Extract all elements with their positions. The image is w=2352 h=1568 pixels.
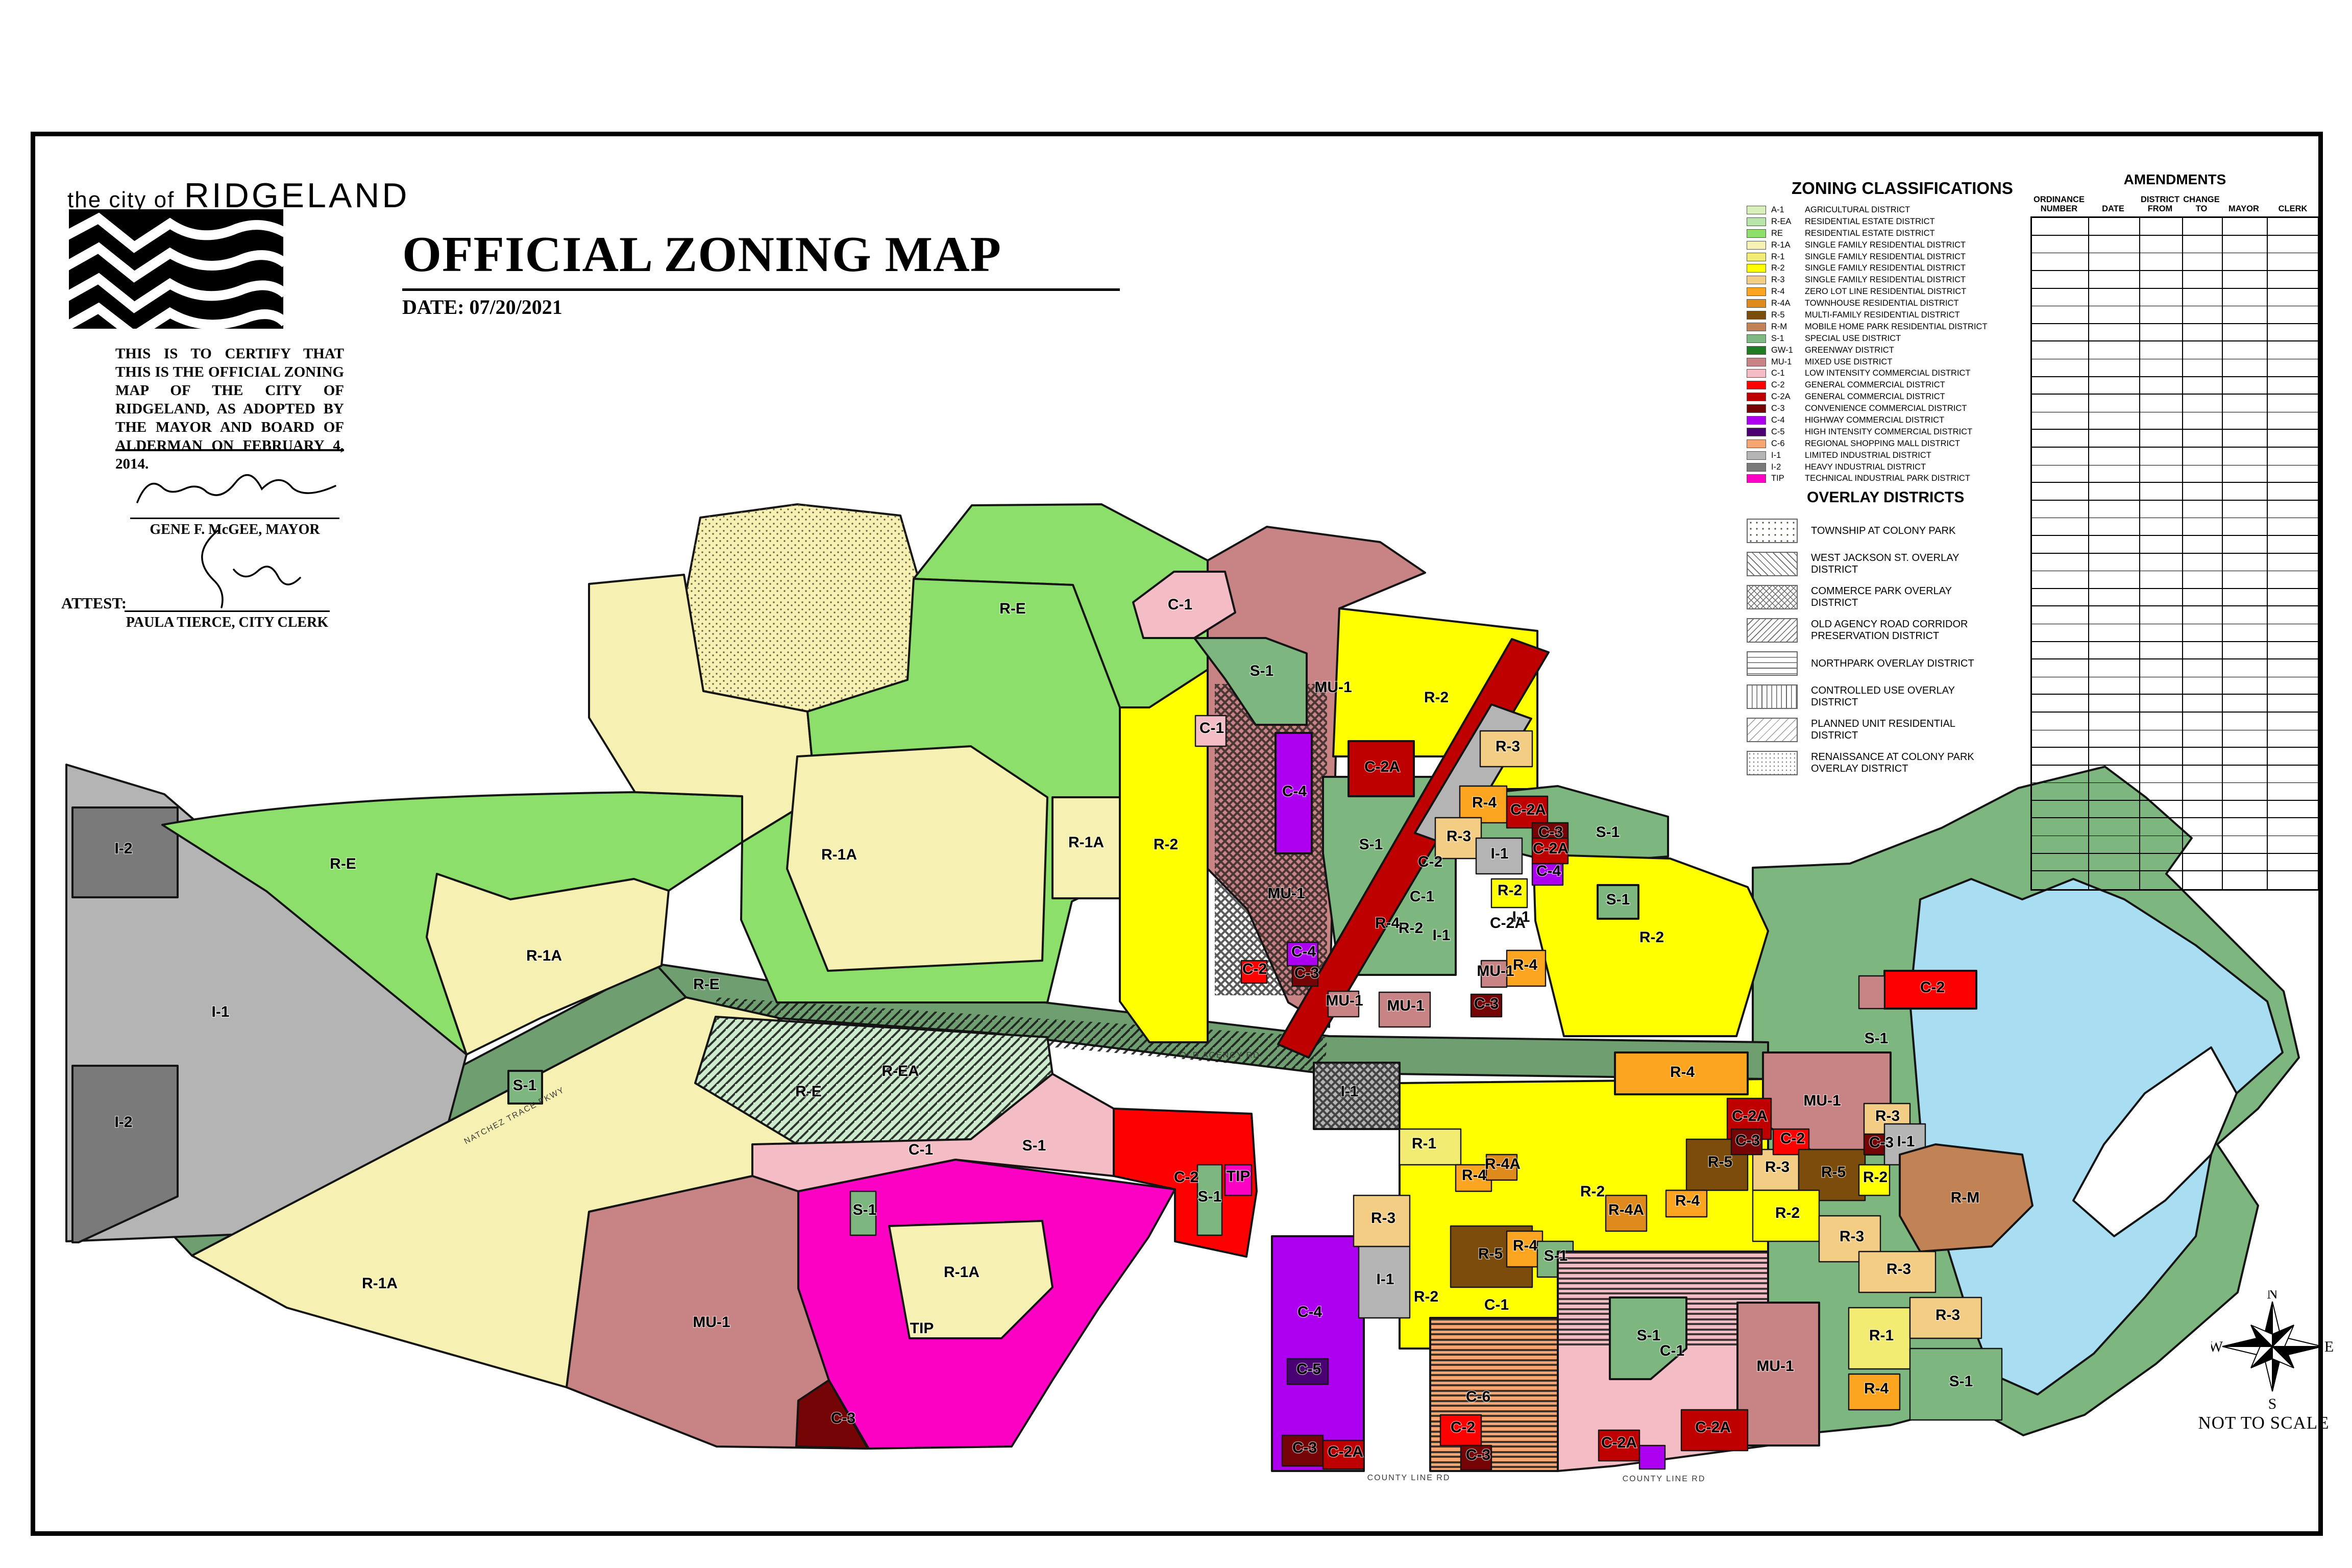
legend-item: C-2A GENERAL COMMERCIAL DISTRICT	[1747, 391, 2040, 403]
legend-swatch	[1747, 206, 1766, 214]
legend-item: C-2 GENERAL COMMERCIAL DISTRICT	[1747, 379, 2040, 391]
amendments-cell	[2223, 324, 2268, 341]
amendments-row	[2032, 766, 2318, 783]
amendments-row	[2032, 801, 2318, 819]
amendments-cell	[2223, 465, 2268, 482]
legend-code: C-6	[1771, 439, 1805, 449]
legend-swatch	[1747, 276, 1766, 284]
amendments-cell	[2223, 606, 2268, 624]
amendments-cell	[2183, 218, 2223, 235]
overlay-item: WEST JACKSON ST. OVERLAY DISTRICT	[1747, 552, 2040, 576]
overlay-title: OVERLAY DISTRICTS	[1807, 489, 2040, 506]
legend-swatch	[1747, 358, 1766, 366]
legend-code: I-1	[1771, 451, 1805, 460]
legend-item: S-1 SPECIAL USE DISTRICT	[1747, 333, 2040, 345]
amendments-cell	[2140, 536, 2183, 553]
amendments-cell	[2223, 659, 2268, 677]
legend-swatch	[1747, 416, 1766, 425]
amendments-cell	[2268, 236, 2318, 253]
amendments-cell	[2223, 748, 2268, 765]
amendments-cell	[2032, 871, 2089, 889]
amendments-cell	[2140, 836, 2183, 853]
amendments-cell	[2140, 818, 2183, 836]
amendments-row	[2032, 324, 2318, 342]
amendments-row	[2032, 783, 2318, 801]
legend-item: GW-1 GREENWAY DISTRICT	[1747, 345, 2040, 356]
amendments-cell	[2032, 713, 2089, 730]
legend-code: C-4	[1771, 415, 1805, 425]
amendments-row	[2032, 624, 2318, 642]
amendments-cell	[2223, 536, 2268, 553]
amendments-cell	[2089, 377, 2140, 394]
amendments-cell	[2183, 518, 2223, 535]
amendments-cell	[2183, 677, 2223, 694]
amendments-cell	[2032, 395, 2089, 412]
amendments-cell	[2140, 518, 2183, 535]
overlay-item: COMMERCE PARK OVERLAY DISTRICT	[1747, 585, 2040, 609]
amendments-cell	[2089, 801, 2140, 818]
amendments-grid	[2030, 216, 2319, 891]
legend-swatch	[1747, 439, 1766, 448]
amendments-cell	[2223, 518, 2268, 535]
amendments-cell	[2268, 359, 2318, 376]
legend-swatch	[1747, 229, 1766, 238]
amendments-cell	[2140, 377, 2183, 394]
amendments-cell	[2140, 642, 2183, 659]
clerk-signature	[168, 527, 311, 619]
amendments-cell	[2183, 536, 2223, 553]
amendments-cell	[2268, 430, 2318, 447]
legend-label: AGRICULTURAL DISTRICT	[1805, 205, 1910, 215]
legend-item: R-M MOBILE HOME PARK RESIDENTIAL DISTRIC…	[1747, 321, 2040, 333]
amendments-cell	[2032, 730, 2089, 747]
amendments-cell	[2223, 818, 2268, 836]
amendments-cell	[2223, 854, 2268, 871]
amendments-cell	[2268, 324, 2318, 341]
legend-item: I-2 HEAVY INDUSTRIAL DISTRICT	[1747, 461, 2040, 473]
amendments-row	[2032, 554, 2318, 572]
mayor-signature	[130, 465, 345, 519]
legend-code: MU-1	[1771, 357, 1805, 367]
amendments-cell	[2032, 748, 2089, 765]
logo-tagline: the city of	[67, 187, 175, 212]
amendments-cell	[2183, 836, 2223, 853]
legend-code: R-M	[1771, 322, 1805, 332]
legend-label: GENERAL COMMERCIAL DISTRICT	[1805, 380, 1945, 390]
amendments-cell	[2140, 854, 2183, 871]
legend-swatch	[1747, 346, 1766, 355]
compass-n: N	[2267, 1290, 2278, 1302]
amendments-cell	[2223, 483, 2268, 500]
amendments-cell	[2089, 501, 2140, 518]
amendments-cell	[2089, 659, 2140, 677]
amendments-cell	[2089, 606, 2140, 624]
amendments-cell	[2223, 642, 2268, 659]
amendments-cell	[2140, 730, 2183, 747]
amendments-cell	[2140, 306, 2183, 323]
amendments-row	[2032, 536, 2318, 554]
legend-item: R-2 SINGLE FAMILY RESIDENTIAL DISTRICT	[1747, 262, 2040, 274]
amendments-cell	[2223, 412, 2268, 429]
legend-item: R-4A TOWNHOUSE RESIDENTIAL DISTRICT	[1747, 298, 2040, 309]
amendments-cell	[2140, 695, 2183, 712]
amendments-cell	[2140, 412, 2183, 429]
legend-label: CONVENIENCE COMMERCIAL DISTRICT	[1805, 404, 1967, 413]
legend-swatch	[1747, 264, 1766, 273]
amendments-cell	[2032, 836, 2089, 853]
amendments-row	[2032, 483, 2318, 501]
amendments-column-header: CHANGE TO	[2182, 195, 2221, 216]
amendments-row	[2032, 412, 2318, 430]
amendments-cell	[2183, 289, 2223, 306]
amendments-cell	[2223, 289, 2268, 306]
amendments-row	[2032, 430, 2318, 448]
amendments-cell	[2183, 395, 2223, 412]
amendments-cell	[2223, 677, 2268, 694]
amendments-cell	[2223, 554, 2268, 571]
amendments-row	[2032, 854, 2318, 872]
amendments-cell	[2183, 642, 2223, 659]
amendments-cell	[2268, 571, 2318, 588]
legend-code: I-2	[1771, 462, 1805, 472]
legend-item: R-3 SINGLE FAMILY RESIDENTIAL DISTRICT	[1747, 274, 2040, 286]
zoning-map-sheet: { "header": { "logo_tagline": "the city …	[0, 0, 2352, 1568]
amendments-cell	[2183, 730, 2223, 747]
amendments-cell	[2268, 677, 2318, 694]
amendments-cell	[2140, 677, 2183, 694]
amendments-cell	[2183, 324, 2223, 341]
legend-swatch	[1747, 393, 1766, 401]
amendments-column-header: DATE	[2088, 204, 2139, 216]
amendments-cell	[2223, 836, 2268, 853]
legend-label: MOBILE HOME PARK RESIDENTIAL DISTRICT	[1805, 322, 1988, 332]
amendments-cell	[2032, 253, 2089, 270]
legend-label: MULTI-FAMILY RESIDENTIAL DISTRICT	[1805, 310, 1960, 320]
amendments-cell	[2268, 836, 2318, 853]
amendments-cell	[2032, 589, 2089, 606]
overlay-label: RENAISSANCE AT COLONY PARK OVERLAY DISTR…	[1811, 751, 1984, 775]
clerk-name: PAULA TIERCE, CITY CLERK	[125, 615, 330, 631]
legend-swatch	[1747, 217, 1766, 226]
amendments-cell	[2223, 871, 2268, 889]
city-flag-logo	[69, 209, 283, 329]
mayor-signature-line	[130, 518, 339, 519]
amendments-cell	[2268, 412, 2318, 429]
amendments-cell	[2223, 395, 2268, 412]
amendments-cell	[2223, 271, 2268, 288]
legend-label: GENERAL COMMERCIAL DISTRICT	[1805, 392, 1945, 402]
amendments-cell	[2032, 536, 2089, 553]
amendments-cell	[2183, 748, 2223, 765]
legend-label: SPECIAL USE DISTRICT	[1805, 334, 1901, 344]
legend-item: R-5 MULTI-FAMILY RESIDENTIAL DISTRICT	[1747, 309, 2040, 321]
legend-code: RE	[1771, 229, 1805, 238]
amendments-cell	[2032, 571, 2089, 588]
amendments-row	[2032, 606, 2318, 624]
overlay-item: PLANNED UNIT RESIDENTIAL DISTRICT	[1747, 718, 2040, 742]
amendments-cell	[2089, 395, 2140, 412]
amendments-cell	[2140, 589, 2183, 606]
amendments-cell	[2032, 624, 2089, 641]
legend-code: R-5	[1771, 310, 1805, 320]
amendments-cell	[2089, 236, 2140, 253]
amendments-cell	[2089, 713, 2140, 730]
amendments-cell	[2140, 624, 2183, 641]
legend-item: MU-1 MIXED USE DISTRICT	[1747, 356, 2040, 368]
amendments-cell	[2268, 854, 2318, 871]
overlay-item: TOWNSHIP AT COLONY PARK	[1747, 519, 2040, 543]
amendments-row	[2032, 871, 2318, 889]
compass-e: E	[2324, 1338, 2334, 1355]
amendments-cell	[2140, 218, 2183, 235]
amendments-cell	[2183, 253, 2223, 270]
legend-label: LIMITED INDUSTRIAL DISTRICT	[1805, 451, 1931, 460]
amendments-cell	[2183, 713, 2223, 730]
amendments-row	[2032, 395, 2318, 412]
amendments-cell	[2089, 271, 2140, 288]
legend-swatch	[1747, 369, 1766, 378]
overlay-label: NORTHPARK OVERLAY DISTRICT	[1811, 658, 1984, 670]
amendments-cell	[2268, 536, 2318, 553]
overlay-label: PLANNED UNIT RESIDENTIAL DISTRICT	[1811, 718, 1984, 742]
amendments-column-header: MAYOR	[2221, 204, 2266, 216]
amendments-column-header: ORDINANCE NUMBER	[2030, 195, 2088, 216]
amendments-row	[2032, 589, 2318, 607]
amendments-cell	[2032, 501, 2089, 518]
amendments-cell	[2268, 253, 2318, 270]
legend-swatch	[1747, 241, 1766, 250]
amendments-cell	[2089, 341, 2140, 359]
amendments-cell	[2268, 395, 2318, 412]
amendments-cell	[2089, 730, 2140, 747]
amendments-cell	[2032, 606, 2089, 624]
amendments-cell	[2089, 465, 2140, 482]
amendments-cell	[2223, 766, 2268, 783]
amendments-cell	[2268, 306, 2318, 323]
amendments-cell	[2268, 766, 2318, 783]
amendments-cell	[2032, 659, 2089, 677]
compass-s: S	[2268, 1395, 2277, 1412]
legend-swatch	[1747, 463, 1766, 472]
overlay-item: RENAISSANCE AT COLONY PARK OVERLAY DISTR…	[1747, 751, 2040, 775]
legend-label: LOW INTENSITY COMMERCIAL DISTRICT	[1805, 369, 1971, 378]
amendments-row	[2032, 677, 2318, 695]
legend-label: MIXED USE DISTRICT	[1805, 357, 1892, 367]
amendments-cell	[2268, 341, 2318, 359]
amendments-cell	[2089, 836, 2140, 853]
amendments-cell	[2032, 483, 2089, 500]
legend-code: R-4	[1771, 287, 1805, 297]
legend-label: HIGH INTENSITY COMMERCIAL DISTRICT	[1805, 427, 1972, 437]
amendments-cell	[2183, 589, 2223, 606]
amendments-cell	[2183, 695, 2223, 712]
amendments-cell	[2089, 677, 2140, 694]
amendments-cell	[2140, 659, 2183, 677]
amendments-cell	[2140, 341, 2183, 359]
overlay-swatch	[1747, 751, 1798, 775]
amendments-cell	[2140, 483, 2183, 500]
not-to-scale-note: NOT TO SCALE	[2179, 1413, 2348, 1433]
zoning-legend: ZONING CLASSIFICATIONS A-1 AGRICULTURAL …	[1747, 179, 2040, 484]
legend-code: R-EA	[1771, 217, 1805, 227]
amendments-cell	[2268, 783, 2318, 800]
amendments-cell	[2268, 624, 2318, 641]
amendments-cell	[2140, 783, 2183, 800]
legend-label: TECHNICAL INDUSTRIAL PARK DISTRICT	[1805, 474, 1970, 483]
amendments-cell	[2032, 766, 2089, 783]
amendments-cell	[2223, 377, 2268, 394]
legend-label: TOWNHOUSE RESIDENTIAL DISTRICT	[1805, 299, 1959, 308]
amendments-cell	[2183, 501, 2223, 518]
amendments-cell	[2032, 695, 2089, 712]
amendments-row	[2032, 695, 2318, 713]
overlay-label: TOWNSHIP AT COLONY PARK	[1811, 525, 1984, 537]
amendments-cell	[2223, 218, 2268, 235]
legend-swatch	[1747, 404, 1766, 413]
amendments-cell	[2268, 871, 2318, 889]
amendments-cell	[2183, 465, 2223, 482]
legend-label: RESIDENTIAL ESTATE DISTRICT	[1805, 217, 1935, 227]
legend-code: R-2	[1771, 263, 1805, 273]
amendments-row	[2032, 218, 2318, 236]
amendments-cell	[2032, 642, 2089, 659]
amendments-cell	[2089, 589, 2140, 606]
legend-item: C-6 REGIONAL SHOPPING MALL DISTRICT	[1747, 438, 2040, 450]
amendments-cell	[2183, 571, 2223, 588]
amendments-cell	[2268, 659, 2318, 677]
legend-code: TIP	[1771, 474, 1805, 483]
overlay-label: COMMERCE PARK OVERLAY DISTRICT	[1811, 585, 1984, 609]
amendments-row	[2032, 359, 2318, 377]
amendments-row	[2032, 271, 2318, 289]
amendments-cell	[2183, 341, 2223, 359]
amendments-cell	[2183, 448, 2223, 465]
legend-label: REGIONAL SHOPPING MALL DISTRICT	[1805, 439, 1960, 449]
amendments-cell	[2140, 395, 2183, 412]
amendments-cell	[2140, 465, 2183, 482]
amendments-cell	[2089, 518, 2140, 535]
amendments-row	[2032, 253, 2318, 271]
amendments-row	[2032, 341, 2318, 359]
amendments-cell	[2268, 642, 2318, 659]
amendments-cell	[2268, 377, 2318, 394]
legend-item: RE RESIDENTIAL ESTATE DISTRICT	[1747, 228, 2040, 239]
amendments-cell	[2223, 430, 2268, 447]
amendments-row	[2032, 465, 2318, 483]
compass-rose: N E S W	[2211, 1290, 2334, 1413]
amendments-cell	[2183, 359, 2223, 376]
overlay-swatch	[1747, 651, 1798, 676]
overlay-swatch	[1747, 618, 1798, 643]
amendments-cell	[2268, 589, 2318, 606]
amendments-cell	[2032, 289, 2089, 306]
amendments-cell	[2268, 218, 2318, 235]
overlay-legend: OVERLAY DISTRICTS TOWNSHIP AT COLONY PAR…	[1747, 489, 2040, 784]
amendments-cell	[2268, 483, 2318, 500]
legend-code: R-1	[1771, 252, 1805, 262]
overlay-item: OLD AGENCY ROAD CORRIDOR PRESERVATION DI…	[1747, 618, 2040, 643]
amendments-cell	[2089, 854, 2140, 871]
compass-w: W	[2211, 1338, 2223, 1355]
amendments-cell	[2223, 783, 2268, 800]
amendments-cell	[2089, 571, 2140, 588]
amendments-cell	[2140, 606, 2183, 624]
amendments-cell	[2268, 730, 2318, 747]
amendments-cell	[2140, 324, 2183, 341]
amendments-cell	[2140, 871, 2183, 889]
amendments-cell	[2223, 624, 2268, 641]
amendments-row	[2032, 236, 2318, 254]
legend-code: C-2A	[1771, 392, 1805, 402]
amendments-cell	[2268, 713, 2318, 730]
amendments-cell	[2223, 695, 2268, 712]
amendments-cell	[2140, 236, 2183, 253]
amendments-cell	[2089, 695, 2140, 712]
legend-code: S-1	[1771, 334, 1805, 344]
amendments-cell	[2183, 766, 2223, 783]
amendments-cell	[2089, 218, 2140, 235]
amendments-cell	[2183, 554, 2223, 571]
amendments-cell	[2089, 536, 2140, 553]
amendments-cell	[2089, 306, 2140, 323]
amendments-cell	[2032, 801, 2089, 818]
certification-text: THIS IS TO CERTIFY THAT THIS IS THE OFFI…	[115, 345, 344, 474]
amendments-panel: AMENDMENTS ORDINANCE NUMBERDATEDISTRICT …	[2030, 171, 2319, 891]
amendments-cell	[2183, 871, 2223, 889]
amendments-cell	[2140, 253, 2183, 270]
overlay-item: CONTROLLED USE OVERLAY DISTRICT	[1747, 684, 2040, 709]
legend-swatch	[1747, 474, 1766, 483]
legend-code: R-3	[1771, 275, 1805, 285]
amendments-cell	[2032, 271, 2089, 288]
amendments-cell	[2183, 412, 2223, 429]
amendments-cell	[2032, 430, 2089, 447]
legend-label: SINGLE FAMILY RESIDENTIAL DISTRICT	[1805, 252, 1966, 262]
amendments-cell	[2032, 218, 2089, 235]
legend-label: HEAVY INDUSTRIAL DISTRICT	[1805, 462, 1926, 472]
amendments-row	[2032, 836, 2318, 854]
legend-swatch	[1747, 299, 1766, 308]
amendments-cell	[2089, 783, 2140, 800]
amendments-column-header: DISTRICT FROM	[2139, 195, 2182, 216]
amendments-cell	[2183, 801, 2223, 818]
amendments-cell	[2183, 624, 2223, 641]
amendments-cell	[2268, 289, 2318, 306]
amendments-cell	[2183, 659, 2223, 677]
legend-swatch	[1747, 428, 1766, 436]
amendments-cell	[2032, 448, 2089, 465]
amendments-cell	[2140, 571, 2183, 588]
amendments-cell	[2223, 448, 2268, 465]
attest-label: ATTEST:	[61, 594, 127, 612]
amendments-cell	[2140, 359, 2183, 376]
amendments-cell	[2223, 359, 2268, 376]
amendments-row	[2032, 377, 2318, 395]
legend-label: SINGLE FAMILY RESIDENTIAL DISTRICT	[1805, 275, 1966, 285]
legend-code: C-3	[1771, 404, 1805, 413]
amendments-cell	[2032, 783, 2089, 800]
title-rule	[402, 288, 1120, 291]
amendments-cell	[2183, 377, 2223, 394]
amendments-cell	[2268, 818, 2318, 836]
amendments-cell	[2032, 377, 2089, 394]
amendments-column-header: CLERK	[2266, 204, 2319, 216]
amendments-cell	[2032, 324, 2089, 341]
amendments-row	[2032, 571, 2318, 589]
amendments-cell	[2268, 801, 2318, 818]
amendments-cell	[2223, 236, 2268, 253]
legend-label: SINGLE FAMILY RESIDENTIAL DISTRICT	[1805, 240, 1966, 250]
